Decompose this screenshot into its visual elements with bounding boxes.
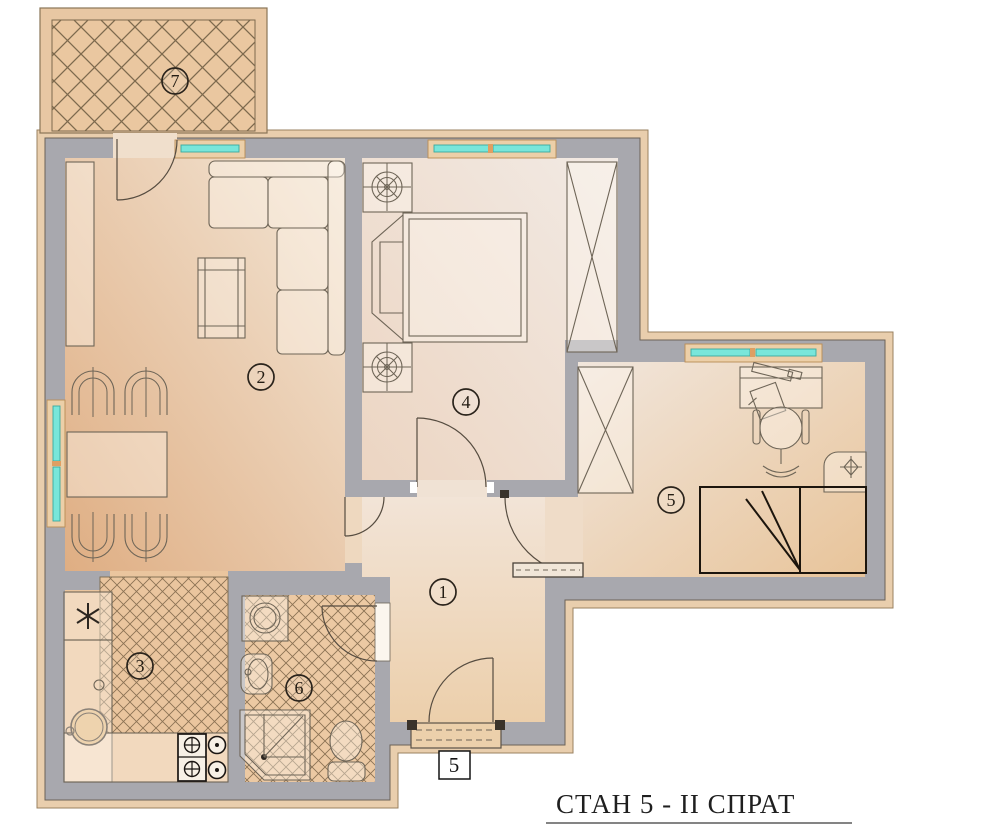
wardrobe-bedroom [567, 162, 617, 352]
kitchen-tiles [100, 577, 228, 733]
room-number: 6 [295, 678, 304, 698]
plan-title-text: СТАН 5 - II СПРАТ [556, 789, 795, 819]
bedroom-door-opening [417, 480, 487, 497]
room-label-4: 4 [453, 389, 479, 415]
washing-machine-icon [242, 596, 288, 641]
room-label-3: 3 [127, 653, 153, 679]
living-hall-opening [345, 497, 362, 563]
wardrobe-room5 [578, 367, 633, 493]
terrace [40, 8, 267, 133]
room-number: 4 [462, 392, 471, 412]
nightstand-top [363, 163, 412, 212]
coffee-table [198, 258, 245, 338]
room-number: 2 [257, 367, 266, 387]
room-label-7: 7 [162, 68, 188, 94]
toilet-icon [328, 721, 365, 781]
window-living-left [47, 400, 65, 527]
window-living-top [175, 140, 245, 158]
entrance-unit-number: 5 [449, 753, 460, 777]
room-label-2: 2 [248, 364, 274, 390]
plan-title: СТАН 5 - II СПРАТ [546, 789, 852, 823]
room-label-6: 6 [286, 675, 312, 701]
window-bedroom-top [428, 140, 556, 158]
fridge-icon [64, 592, 112, 640]
nightstand-bottom [363, 343, 412, 392]
room-number: 3 [136, 656, 145, 676]
room-number: 7 [171, 71, 180, 91]
washbasin-icon [241, 654, 272, 694]
window-room5-top [685, 344, 822, 362]
wardrobe-living [66, 162, 94, 346]
room-number: 1 [439, 582, 448, 602]
floor-plan: 1 2 3 4 5 6 7 5 СТАН 5 - II СПРАТ [0, 0, 1000, 829]
room-label-1: 1 [430, 579, 456, 605]
entrance-unit-badge: 5 [439, 751, 470, 779]
room-label-5: 5 [658, 487, 684, 513]
room-number: 5 [667, 490, 676, 510]
terrace-door-opening [113, 133, 177, 158]
